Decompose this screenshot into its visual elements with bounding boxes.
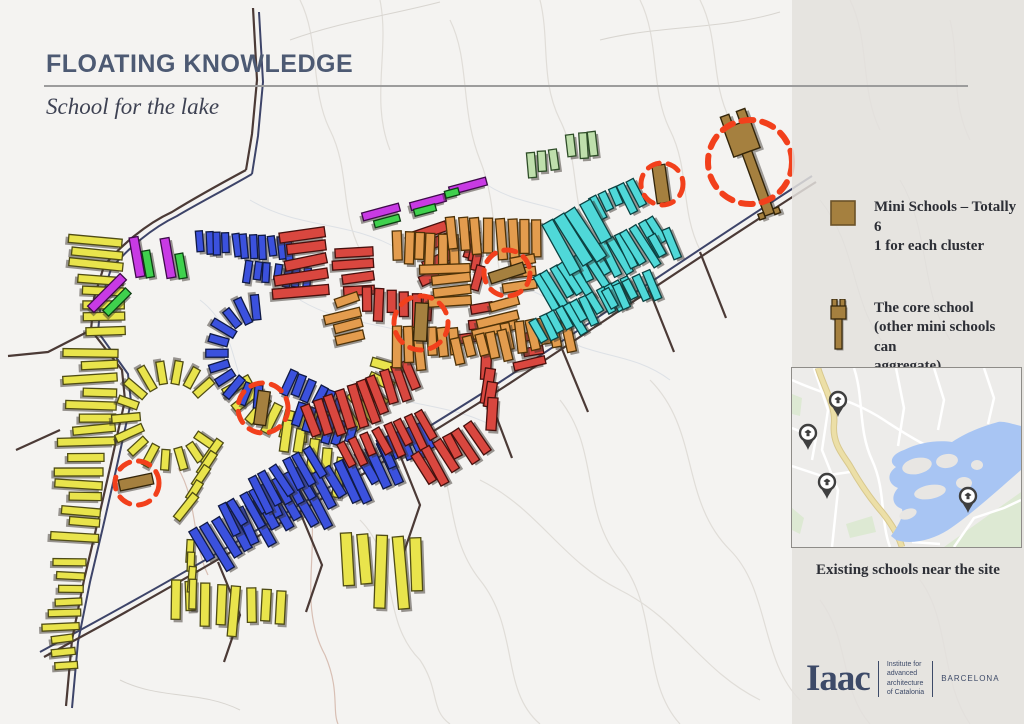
- iaac-org-name: Institute for advanced architecture of C…: [887, 660, 924, 696]
- building: [486, 397, 501, 433]
- building: [340, 532, 357, 588]
- mini-school: [413, 303, 431, 345]
- building: [222, 233, 232, 256]
- road-dark: [16, 430, 60, 450]
- building: [62, 400, 116, 412]
- building: [60, 349, 118, 360]
- right-panel: Mini Schools – Totally 6 1 for each clus…: [792, 0, 1024, 724]
- mini-school-label: Mini Schools – Totally 6 1 for each clus…: [874, 198, 1020, 257]
- mini-school-square-glyph: [828, 198, 858, 228]
- mini-school-icon: [828, 198, 874, 233]
- building: [48, 634, 73, 647]
- logo-divider: [878, 661, 879, 697]
- building: [441, 188, 460, 202]
- building: [520, 219, 532, 256]
- cluster-palegreen: [526, 131, 600, 181]
- building: [51, 468, 103, 479]
- building: [171, 580, 183, 622]
- building: [80, 388, 117, 400]
- building: [47, 531, 98, 544]
- page-title: FLOATING KNOWLEDGE: [46, 50, 353, 79]
- building: [153, 358, 168, 385]
- building: [78, 360, 117, 372]
- building: [80, 312, 125, 323]
- inset-map: [791, 367, 1022, 548]
- building: [70, 423, 116, 438]
- iaac-city: BARCELONA: [941, 674, 999, 683]
- road-dark: [246, 8, 257, 170]
- legend-item-core-school: The core school (other mini schools can …: [828, 299, 1020, 377]
- building: [275, 591, 288, 628]
- building: [45, 609, 81, 619]
- inset-map-canvas: [792, 368, 1021, 547]
- building: [83, 326, 126, 338]
- building: [52, 479, 103, 493]
- building: [52, 661, 78, 672]
- core-school-icon: [828, 299, 874, 356]
- iaac-logo: Iaac Institute for advanced architecture…: [806, 660, 1000, 697]
- building: [54, 437, 115, 449]
- logo-divider-2: [932, 661, 933, 697]
- building: [160, 449, 172, 473]
- mini-school: [652, 164, 673, 207]
- inset-island: [971, 460, 983, 470]
- building: [339, 271, 375, 287]
- building: [329, 258, 374, 273]
- building: [548, 149, 562, 174]
- page-subtitle: School for the lake: [46, 94, 219, 120]
- road-dark: [700, 252, 726, 318]
- building-clusters: [39, 131, 685, 673]
- building: [66, 492, 101, 503]
- building: [53, 571, 84, 582]
- building: [362, 287, 374, 314]
- building: [227, 586, 243, 640]
- building: [216, 585, 229, 628]
- building: [262, 263, 273, 286]
- building: [203, 349, 228, 360]
- core-school-label: The core school (other mini schools can …: [874, 299, 1020, 377]
- building: [374, 535, 390, 611]
- title-divider: [44, 85, 968, 87]
- core-school-key-glyph: [828, 299, 852, 351]
- mini-school: [115, 473, 154, 494]
- building: [39, 623, 80, 634]
- building: [60, 373, 118, 387]
- building: [373, 288, 386, 324]
- legend-item-mini-schools: Mini Schools – Totally 6 1 for each clus…: [828, 198, 1020, 257]
- inset-caption: Existing schools near the site: [792, 562, 1024, 579]
- building: [66, 516, 100, 529]
- slide: FLOATING KNOWLEDGE School for the lake M…: [0, 0, 1024, 724]
- building: [261, 589, 274, 624]
- building: [56, 585, 84, 595]
- iaac-wordmark: Iaac: [806, 660, 870, 697]
- building: [483, 218, 495, 256]
- building: [392, 231, 405, 264]
- building: [169, 357, 184, 385]
- building: [48, 647, 76, 659]
- building: [242, 260, 255, 286]
- building: [52, 598, 82, 609]
- building: [537, 151, 549, 175]
- building: [65, 453, 104, 464]
- building: [469, 217, 484, 257]
- building: [247, 588, 259, 626]
- building: [200, 583, 212, 629]
- building: [410, 538, 425, 594]
- building: [195, 230, 206, 254]
- building: [565, 134, 578, 160]
- building: [392, 536, 412, 612]
- building: [189, 579, 199, 612]
- building: [587, 131, 601, 159]
- building: [50, 559, 86, 569]
- building: [109, 413, 141, 426]
- building: [357, 534, 375, 588]
